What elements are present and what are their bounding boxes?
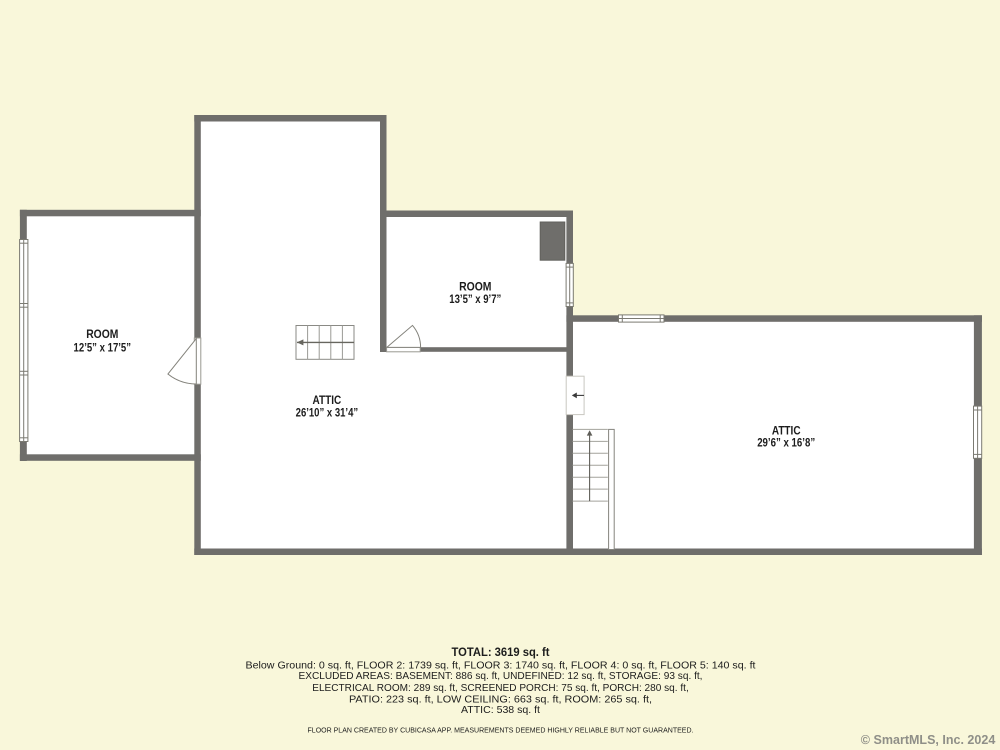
svg-text:ROOM: ROOM bbox=[86, 327, 118, 341]
svg-text:29’6” x 16’8”: 29’6” x 16’8” bbox=[757, 436, 815, 450]
svg-text:ELECTRICAL ROOM: 289 sq. ft, S: ELECTRICAL ROOM: 289 sq. ft, SCREENED PO… bbox=[312, 682, 689, 694]
svg-text:EXCLUDED AREAS: BASEMENT: 886: EXCLUDED AREAS: BASEMENT: 886 sq. ft, UN… bbox=[299, 670, 703, 682]
svg-text:12’5” x 17’5”: 12’5” x 17’5” bbox=[74, 341, 132, 355]
svg-text:TOTAL: 3619 sq. ft: TOTAL: 3619 sq. ft bbox=[452, 647, 550, 659]
svg-text:FLOOR PLAN CREATED BY CUBICASA: FLOOR PLAN CREATED BY CUBICASA APP. MEAS… bbox=[308, 727, 694, 734]
svg-text:26’10” x 31’4”: 26’10” x 31’4” bbox=[296, 406, 359, 420]
svg-text:13’5” x 9’7”: 13’5” x 9’7” bbox=[449, 292, 501, 306]
svg-text:ATTIC: 538 sq. ft: ATTIC: 538 sq. ft bbox=[461, 704, 540, 716]
svg-text:© SmartMLS, Inc. 2024: © SmartMLS, Inc. 2024 bbox=[861, 732, 996, 747]
